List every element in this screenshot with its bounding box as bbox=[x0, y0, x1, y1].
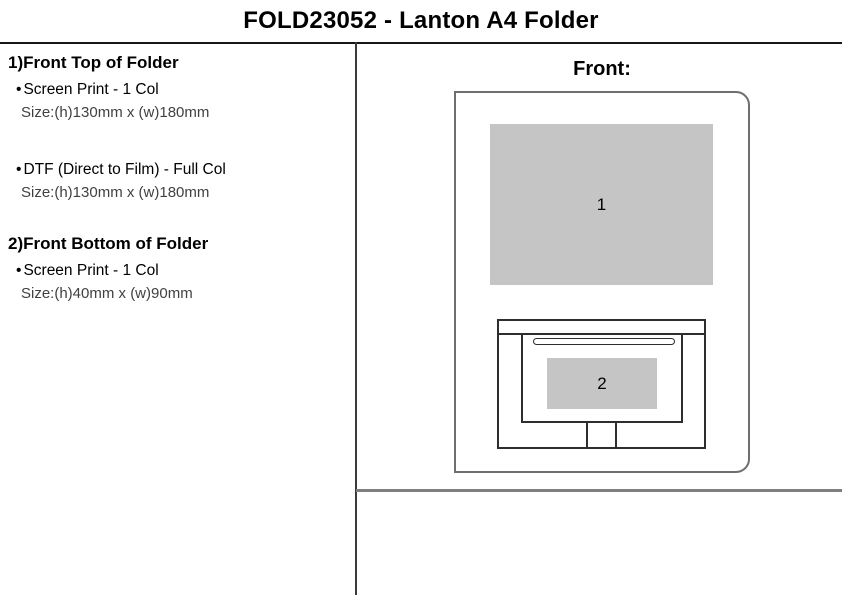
folder-pocket: 2 bbox=[497, 319, 706, 449]
bottom-divider-line bbox=[356, 489, 842, 492]
spec-size-line: Size:(h)130mm x (w)180mm bbox=[21, 104, 344, 122]
bullet-icon: • bbox=[16, 262, 21, 279]
pocket-inner-panel: 2 bbox=[521, 333, 683, 423]
spec-method-line: •DTF (Direct to Film) - Full Col bbox=[16, 160, 344, 179]
vertical-divider-line bbox=[355, 42, 357, 595]
spec-section-heading: 1)Front Top of Folder bbox=[8, 53, 344, 73]
print-area-2-label: 2 bbox=[597, 374, 606, 394]
bullet-icon: • bbox=[16, 81, 21, 98]
spec-method-label: Screen Print - 1 Col bbox=[23, 262, 158, 279]
spec-method-line: •Screen Print - 1 Col bbox=[16, 261, 344, 280]
front-view-label: Front: bbox=[454, 58, 750, 81]
folder-outline-diagram: 1 2 bbox=[454, 91, 750, 473]
print-area-1: 1 bbox=[490, 124, 713, 285]
print-area-2: 2 bbox=[547, 358, 657, 409]
business-card-slot bbox=[533, 338, 675, 345]
bullet-icon: • bbox=[16, 161, 21, 178]
spec-size-line: Size:(h)130mm x (w)180mm bbox=[21, 184, 344, 202]
pocket-tab bbox=[586, 423, 617, 447]
print-specs-panel: 1)Front Top of Folder •Screen Print - 1 … bbox=[8, 53, 344, 303]
spec-size-line: Size:(h)40mm x (w)90mm bbox=[21, 285, 344, 303]
spec-method-label: DTF (Direct to Film) - Full Col bbox=[23, 161, 225, 178]
page-title: FOLD23052 - Lanton A4 Folder bbox=[0, 7, 842, 35]
print-area-1-label: 1 bbox=[597, 195, 606, 215]
spec-method-label: Screen Print - 1 Col bbox=[23, 81, 158, 98]
spec-sheet-page: FOLD23052 - Lanton A4 Folder 1)Front Top… bbox=[0, 0, 842, 595]
title-divider-line bbox=[0, 42, 842, 44]
spec-section-heading: 2)Front Bottom of Folder bbox=[8, 234, 344, 254]
spec-method-line: •Screen Print - 1 Col bbox=[16, 80, 344, 99]
